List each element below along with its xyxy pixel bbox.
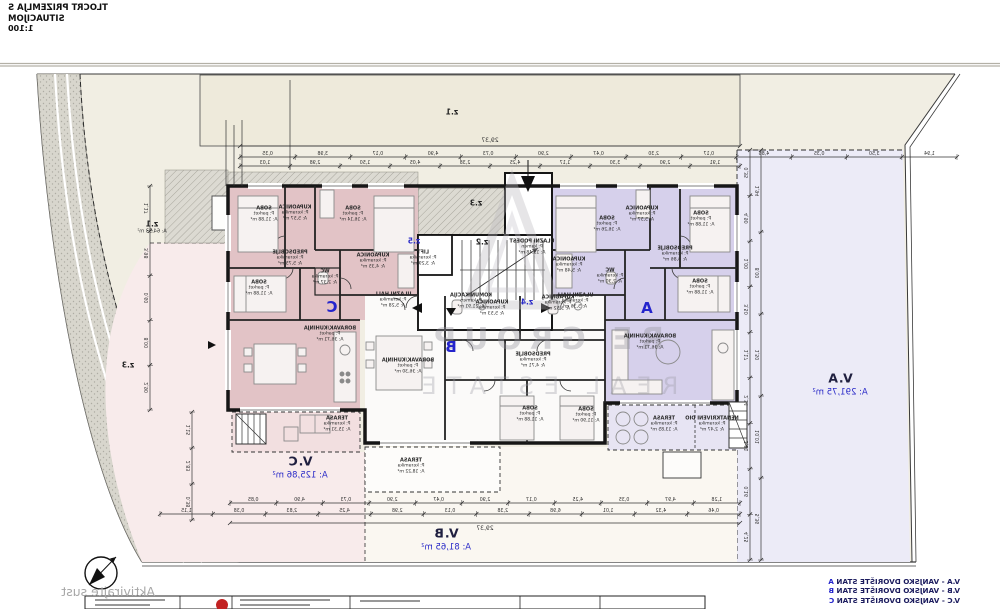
- svg-text:8,00: 8,00: [144, 337, 150, 348]
- svg-text:2,90: 2,90: [480, 497, 491, 503]
- svg-text:0,17: 0,17: [703, 151, 714, 157]
- svg-text:5,36: 5,36: [755, 514, 761, 525]
- svg-text:3,50: 3,50: [744, 304, 750, 315]
- legend-item-vc: V.C - VANJSKO DVORIŠTE STAN C: [788, 596, 960, 605]
- legend-item-va: V.A - VANJSKO DVORIŠTE STAN A: [788, 577, 960, 586]
- svg-text:4,86: 4,86: [759, 151, 770, 157]
- drawing-title: TLOCRT PRIZEMLJA S SITUACIJOM 1:100: [8, 3, 136, 34]
- svg-text:0,47: 0,47: [593, 151, 604, 157]
- outdoor-stairs-west: [236, 414, 266, 444]
- svg-text:4,32: 4,32: [656, 508, 667, 514]
- svg-text:6,98: 6,98: [550, 508, 561, 514]
- svg-text:4,97: 4,97: [665, 497, 676, 503]
- svg-text:2,38: 2,38: [497, 508, 508, 514]
- svg-text:0,35: 0,35: [262, 151, 273, 157]
- svg-text:4,90: 4,90: [294, 497, 305, 503]
- svg-text:29,37: 29,37: [476, 525, 493, 532]
- legend-item-vb: V.B - VANJSKO DVORIŠTE STAN B: [788, 586, 960, 595]
- parcel-z1: [200, 75, 740, 146]
- svg-text:1,91: 1,91: [710, 160, 721, 166]
- svg-text:2,90: 2,90: [387, 497, 398, 503]
- svg-text:0,73: 0,73: [341, 497, 352, 503]
- svg-text:2,90: 2,90: [144, 382, 150, 393]
- svg-text:2,90: 2,90: [538, 151, 549, 157]
- svg-text:0,38: 0,38: [234, 508, 245, 514]
- svg-text:2,98: 2,98: [310, 160, 321, 166]
- svg-text:3,98: 3,98: [144, 248, 150, 259]
- svg-text:0,13: 0,13: [445, 508, 456, 514]
- svg-text:0,85: 0,85: [248, 497, 259, 503]
- svg-text:0,35: 0,35: [744, 167, 750, 178]
- watermark-text-line1: RE GROUP: [330, 322, 760, 357]
- watermark-text-line2: REAL ESTATE: [330, 372, 760, 400]
- svg-text:0,17: 0,17: [373, 151, 384, 157]
- svg-text:8,00: 8,00: [755, 268, 761, 279]
- titleblock-sliver: [85, 596, 705, 609]
- svg-text:29,37: 29,37: [481, 137, 498, 144]
- svg-text:0,38: 0,38: [186, 497, 192, 508]
- svg-text:0,17: 0,17: [526, 497, 537, 503]
- road-edge-lines: [0, 64, 1000, 67]
- os-activation-watermark: Aktivirajte sust: [0, 584, 155, 599]
- legend: V.A - VANJSKO DVORIŠTE STAN A V.B - VANJ…: [788, 577, 960, 605]
- svg-text:0,35: 0,35: [814, 151, 825, 157]
- svg-text:1,94: 1,94: [924, 151, 935, 157]
- svg-text:4,25: 4,25: [339, 508, 350, 514]
- svg-text:2,83: 2,83: [186, 461, 192, 472]
- svg-text:1,17: 1,17: [144, 203, 150, 214]
- svg-text:0,73: 0,73: [483, 151, 494, 157]
- svg-text:0,35: 0,35: [619, 497, 630, 503]
- svg-text:1,03: 1,03: [260, 160, 271, 166]
- svg-text:0,46: 0,46: [708, 508, 719, 514]
- svg-text:2,30: 2,30: [648, 151, 659, 157]
- svg-text:3,30: 3,30: [610, 160, 621, 166]
- floor-plan-page: 29,370,353,980,174,900,732,900,472,300,1…: [0, 0, 1000, 609]
- svg-text:1,01: 1,01: [603, 508, 614, 514]
- svg-text:4,90: 4,90: [744, 213, 750, 224]
- svg-text:1,15: 1,15: [186, 425, 192, 436]
- svg-text:1,17: 1,17: [560, 160, 571, 166]
- svg-text:0,16: 0,16: [744, 486, 750, 497]
- svg-text:1,94: 1,94: [755, 186, 761, 197]
- svg-text:2,98: 2,98: [392, 508, 403, 514]
- svg-text:2,83: 2,83: [286, 508, 297, 514]
- svg-text:0,60: 0,60: [144, 293, 150, 304]
- svg-text:4,90: 4,90: [428, 151, 439, 157]
- drawing-scale: 1:100: [8, 24, 136, 34]
- drawing-title-line: TLOCRT PRIZEMLJA S SITUACIJOM: [8, 3, 136, 24]
- svg-text:1,28: 1,28: [711, 497, 722, 503]
- svg-text:2,90: 2,90: [660, 160, 671, 166]
- site-plan-drawing: 29,370,353,980,174,900,732,900,472,300,1…: [0, 0, 1000, 609]
- utility-pad: [663, 452, 701, 478]
- svg-text:1,00: 1,00: [744, 259, 750, 270]
- svg-text:4,05: 4,05: [410, 160, 421, 166]
- svg-text:0,47: 0,47: [433, 497, 444, 503]
- terrace-a: [608, 405, 737, 450]
- terrace-b: [365, 447, 500, 492]
- svg-text:2,38: 2,38: [460, 160, 471, 166]
- svg-text:1,15: 1,15: [181, 508, 192, 514]
- svg-text:3,98: 3,98: [317, 151, 328, 157]
- svg-text:4,25: 4,25: [572, 497, 583, 503]
- svg-text:1,50: 1,50: [360, 160, 371, 166]
- svg-text:4,25: 4,25: [510, 160, 521, 166]
- svg-text:3,81: 3,81: [744, 441, 750, 452]
- svg-text:10,01: 10,01: [755, 430, 761, 444]
- svg-text:3,50: 3,50: [869, 151, 880, 157]
- svg-text:4,25: 4,25: [744, 532, 750, 543]
- yard-va: [737, 150, 910, 562]
